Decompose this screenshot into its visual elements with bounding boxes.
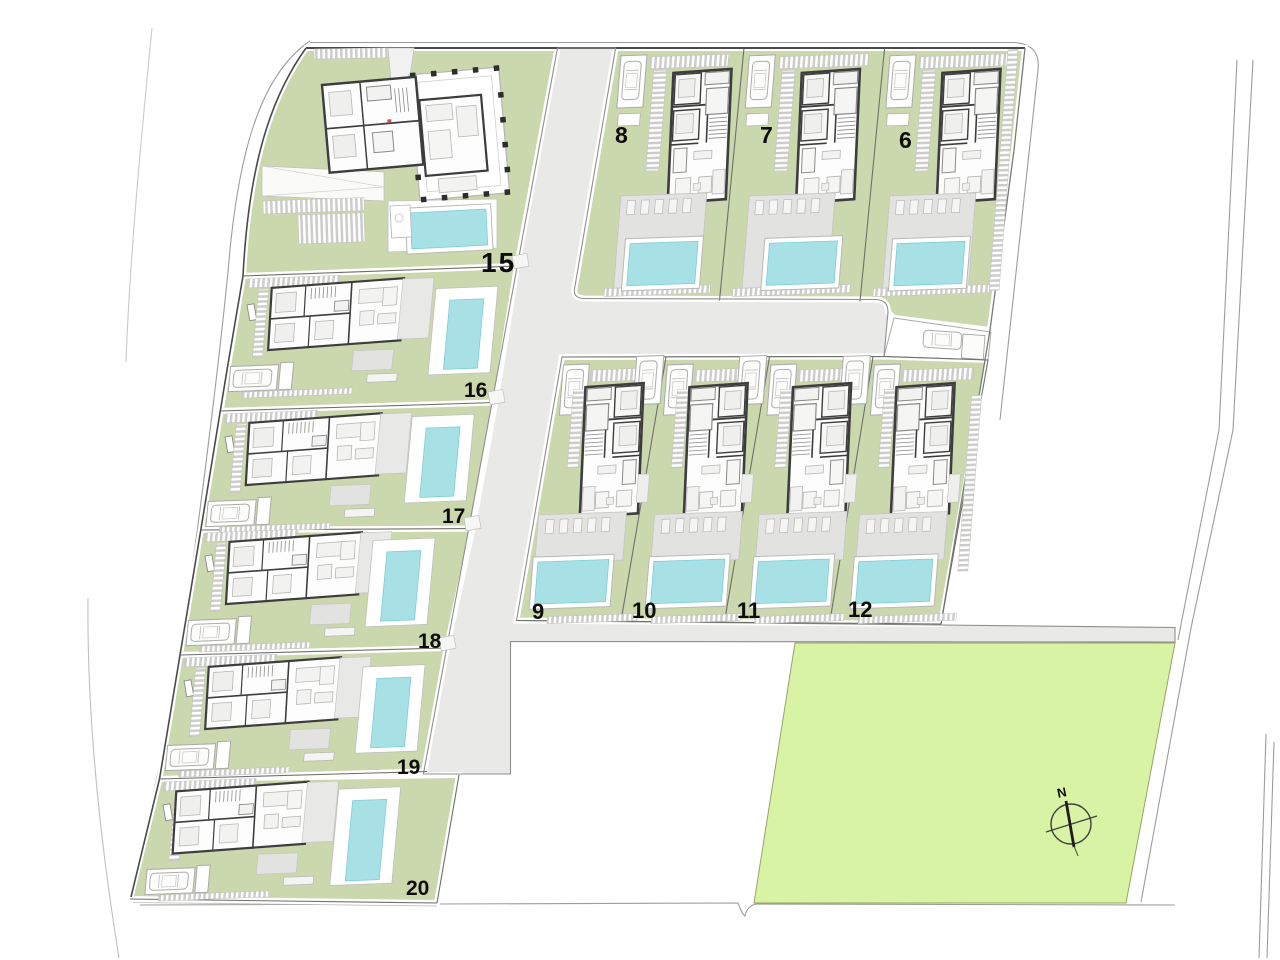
svg-text:20: 20 (406, 877, 429, 900)
svg-text:15: 15 (481, 247, 516, 278)
svg-text:19: 19 (397, 756, 420, 779)
svg-text:10: 10 (632, 598, 656, 623)
svg-text:18: 18 (418, 630, 442, 653)
svg-text:6: 6 (899, 127, 912, 153)
svg-text:17: 17 (442, 505, 465, 528)
svg-text:16: 16 (464, 379, 487, 402)
svg-text:7: 7 (760, 122, 773, 148)
svg-text:12: 12 (848, 597, 872, 622)
svg-text:9: 9 (532, 599, 544, 624)
svg-text:11: 11 (737, 598, 760, 623)
svg-text:8: 8 (615, 122, 628, 148)
